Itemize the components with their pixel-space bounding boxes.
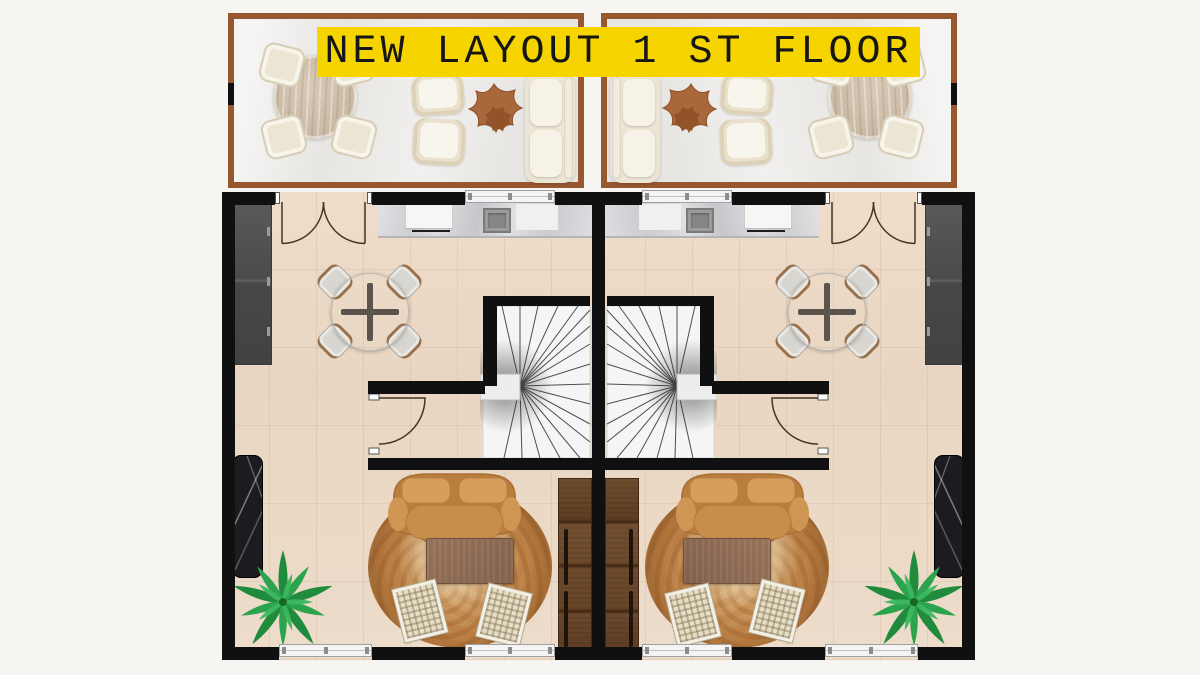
- counter-accent-line: [412, 230, 450, 232]
- door-jamb: [917, 192, 922, 204]
- interior-wall: [483, 296, 497, 386]
- terrace-armchair: [720, 73, 775, 117]
- coffee-table: [426, 538, 514, 584]
- exterior-wall-top: [372, 192, 465, 205]
- unit-left: [222, 192, 605, 660]
- media-cabinet: [605, 478, 639, 655]
- exterior-wall-side: [222, 192, 235, 660]
- window: [642, 190, 732, 203]
- exterior-wall-side: [962, 192, 975, 660]
- exterior-wall-bottom: [918, 647, 975, 660]
- terrace-sofa: [525, 73, 575, 183]
- dining-table: [331, 273, 409, 351]
- unit-right: [592, 192, 975, 660]
- terrace-rail-tick: [228, 83, 234, 105]
- interior-wall: [368, 458, 592, 470]
- terrace-armchair: [719, 118, 773, 167]
- interior-door: [760, 386, 830, 462]
- interior-door: [367, 386, 437, 462]
- cabinet-handle: [564, 529, 568, 585]
- sofa-cushion: [530, 79, 562, 126]
- cabinet-handle: [629, 529, 633, 585]
- wardrobe: [230, 198, 272, 365]
- sofa-cushion: [623, 130, 655, 177]
- french-door: [275, 194, 372, 256]
- interior-wall: [368, 381, 485, 394]
- window: [465, 644, 555, 657]
- exterior-wall-bottom: [592, 647, 642, 660]
- french-door: [825, 194, 922, 256]
- interior-wall: [712, 381, 829, 394]
- window: [279, 644, 372, 657]
- cutting-board: [406, 204, 452, 228]
- interior-wall: [605, 458, 829, 470]
- floor-plan-canvas: NEW LAYOUT 1 ST FLOOR: [0, 0, 1200, 675]
- armchair-cushion: [418, 78, 458, 110]
- window: [465, 190, 555, 203]
- media-cabinet: [558, 478, 592, 655]
- exterior-wall-bottom: [372, 647, 465, 660]
- exterior-wall-top: [222, 192, 275, 205]
- counter-prep-area: [639, 204, 681, 230]
- palm-plant: [858, 544, 970, 656]
- terrace-sofa: [610, 73, 660, 183]
- interior-wall: [700, 296, 714, 386]
- terrace-armchair: [411, 73, 466, 117]
- cabinet-handle: [564, 591, 568, 647]
- title-banner: NEW LAYOUT 1 ST FLOOR: [317, 27, 920, 77]
- terrace-armchair: [412, 118, 466, 167]
- armchair-cushion: [727, 78, 767, 110]
- terrace-rail-tick: [951, 83, 957, 105]
- armchair-cushion: [726, 122, 766, 159]
- table-cross-base: [824, 283, 830, 341]
- sofa-cushion: [530, 130, 562, 177]
- counter-prep-area: [516, 204, 558, 230]
- kitchen-sink: [686, 208, 714, 233]
- exterior-wall-top: [592, 192, 642, 205]
- exterior-wall-bottom: [732, 647, 825, 660]
- door-jamb: [367, 192, 372, 204]
- exterior-wall-bottom: [222, 647, 279, 660]
- palm-plant: [227, 544, 339, 656]
- organic-star-coffee-table: [657, 83, 719, 149]
- exterior-wall-top: [922, 192, 975, 205]
- armchair-cushion: [419, 122, 459, 159]
- dining-table: [788, 273, 866, 351]
- kitchen-sink: [483, 208, 511, 233]
- wardrobe: [925, 198, 967, 365]
- cabinet-handle: [629, 591, 633, 647]
- party-wall: [592, 192, 605, 660]
- coffee-table: [683, 538, 771, 584]
- counter-accent-line: [747, 230, 785, 232]
- sofa-cushion: [623, 79, 655, 126]
- window: [642, 644, 732, 657]
- table-cross-base: [367, 283, 373, 341]
- exterior-wall-top: [732, 192, 825, 205]
- door-jamb: [275, 192, 280, 204]
- cutting-board: [745, 204, 791, 228]
- door-jamb: [825, 192, 830, 204]
- window: [825, 644, 918, 657]
- organic-star-coffee-table: [466, 83, 528, 149]
